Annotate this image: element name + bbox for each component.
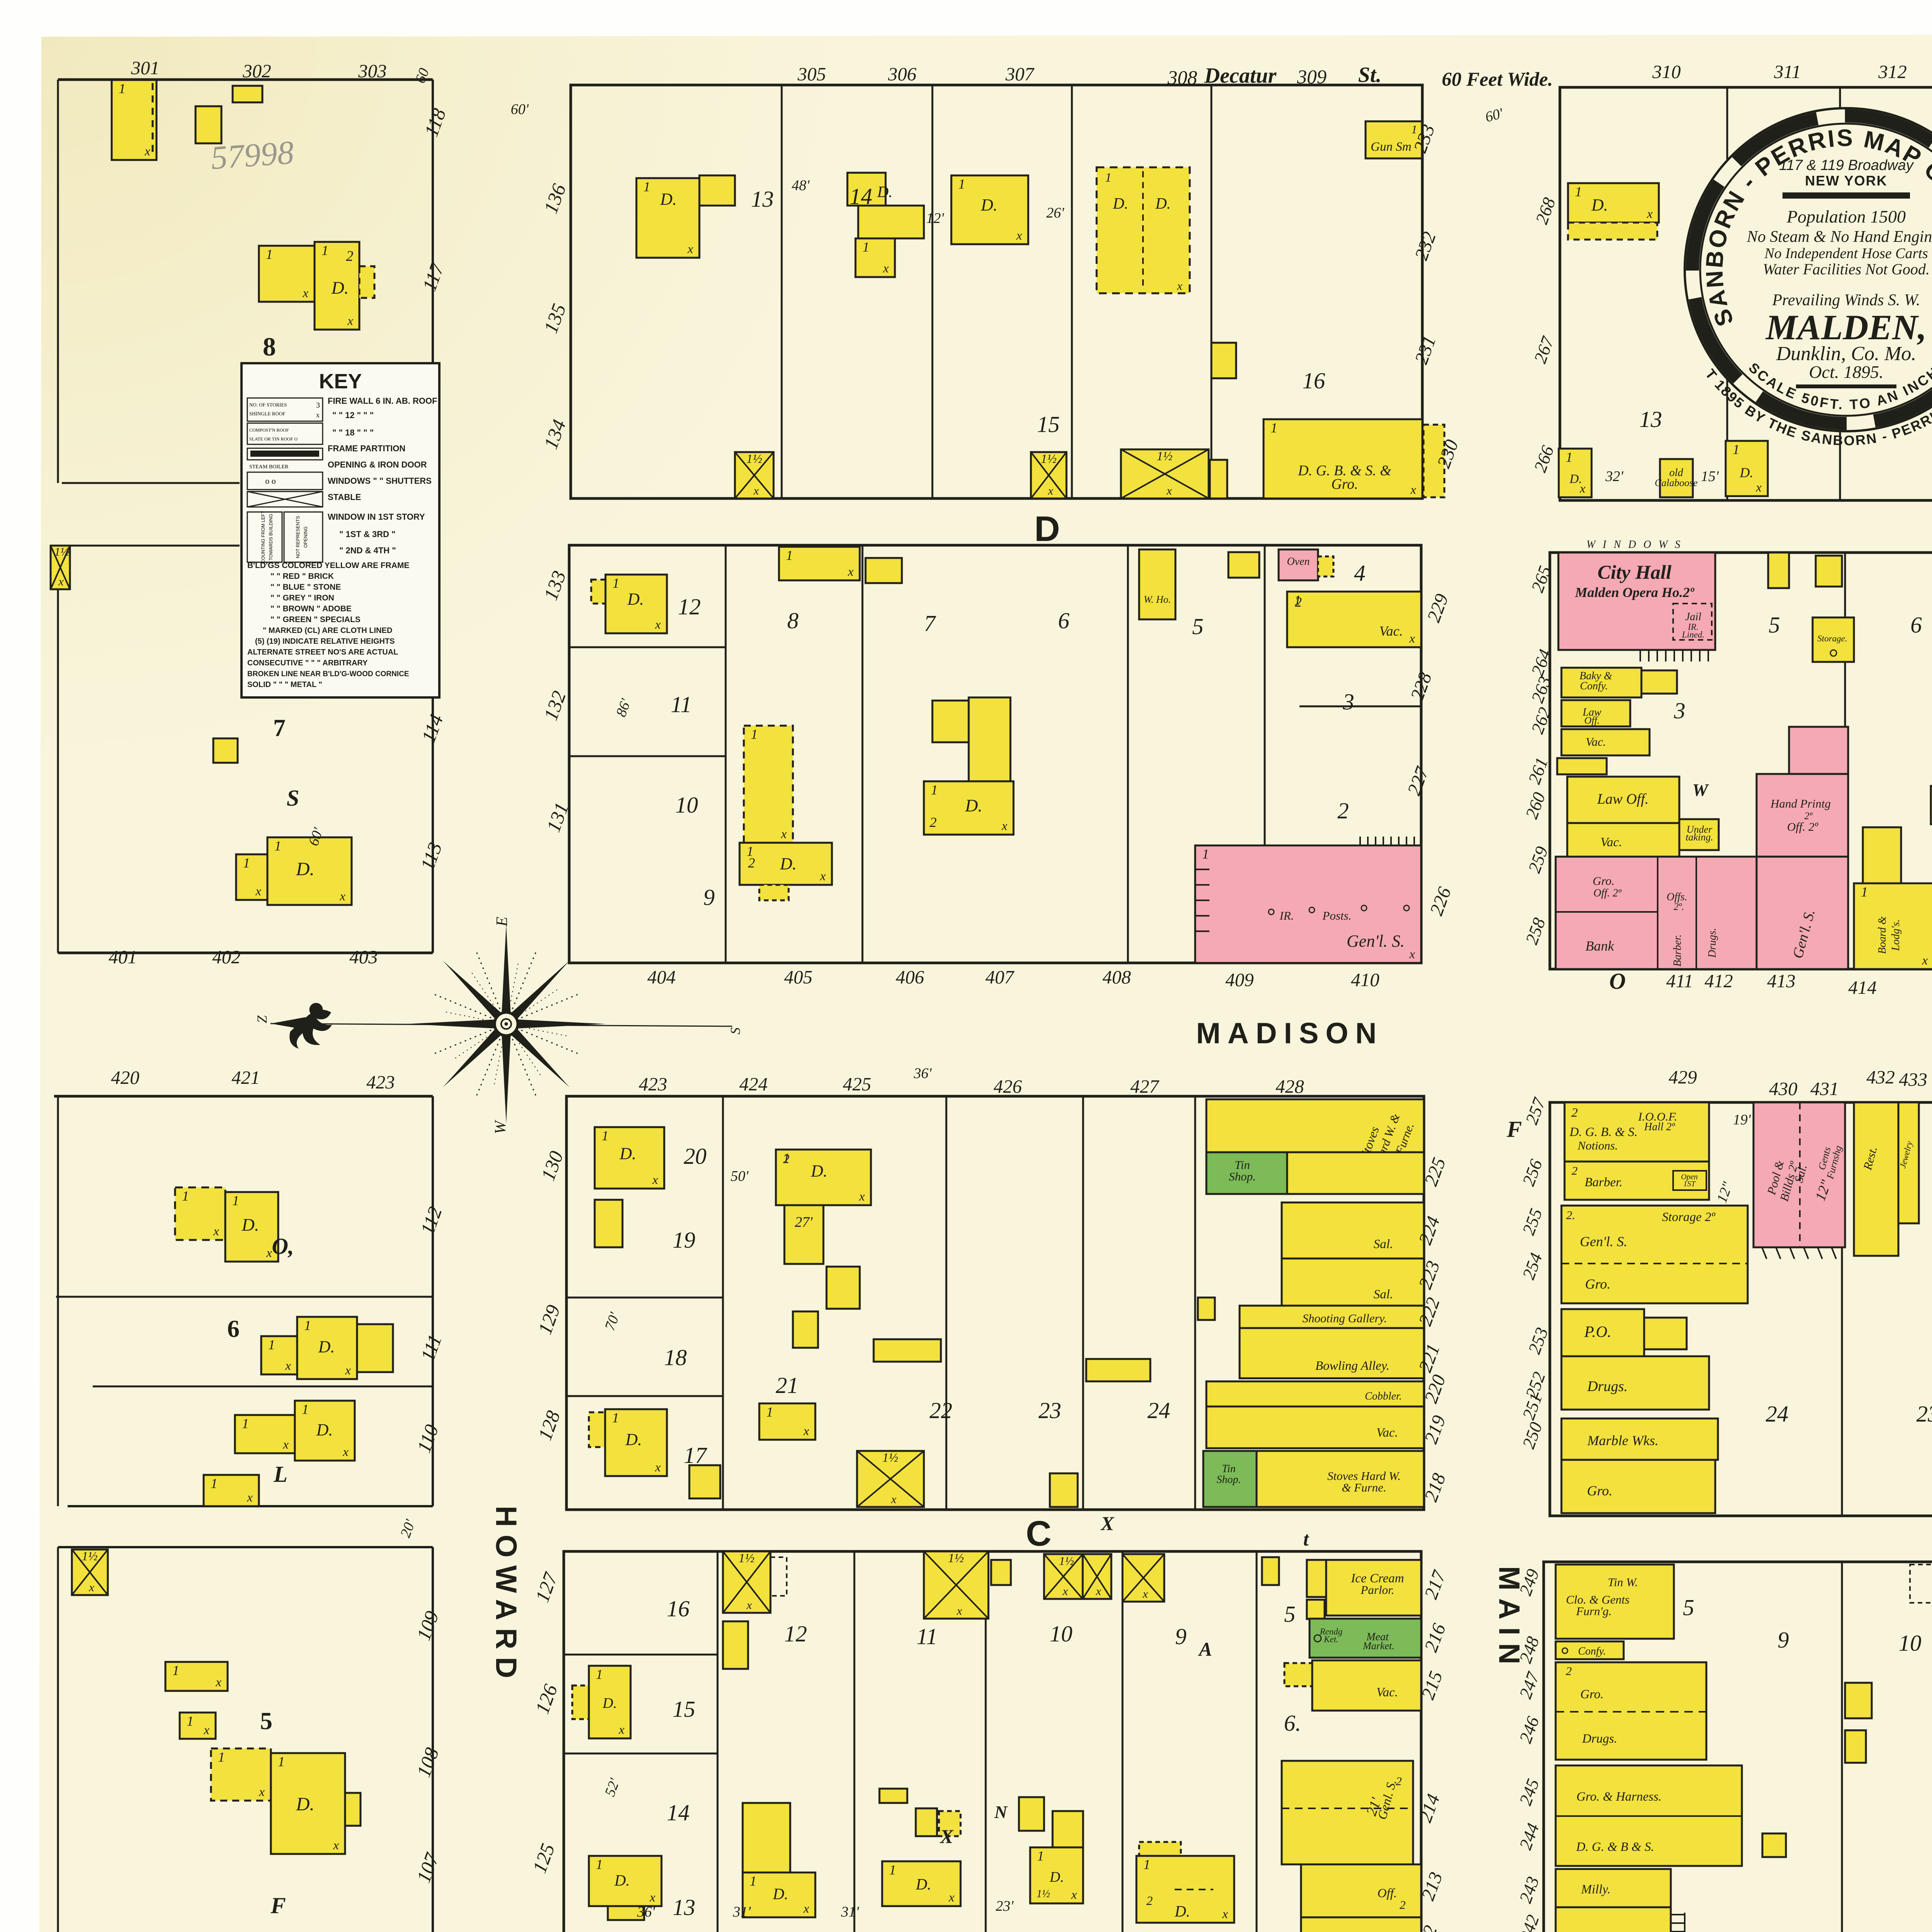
svg-text:Bowling Alley.: Bowling Alley. [1315, 1359, 1389, 1373]
svg-text:307: 307 [1005, 63, 1035, 85]
svg-text:420: 420 [111, 1067, 139, 1088]
svg-text:13: 13 [1639, 406, 1662, 432]
svg-text:405: 405 [784, 966, 813, 988]
svg-text:1½: 1½ [82, 1549, 97, 1563]
svg-text:1: 1 [1861, 884, 1868, 900]
svg-text:Law Off.: Law Off. [1597, 791, 1648, 807]
svg-text:421: 421 [231, 1067, 260, 1088]
svg-text:NEW YORK: NEW YORK [1805, 173, 1887, 189]
svg-text:WINDOWS " " SHUTTERS: WINDOWS " " SHUTTERS [328, 476, 432, 486]
svg-text:D.: D. [780, 854, 797, 873]
svg-text:x: x [820, 869, 826, 883]
svg-text:Vac.: Vac. [1586, 735, 1606, 748]
svg-text:1½: 1½ [948, 1551, 964, 1565]
svg-text:x: x [649, 1891, 655, 1905]
svg-text:5: 5 [1683, 1595, 1694, 1620]
svg-text:402: 402 [212, 946, 241, 968]
svg-text:Notions.: Notions. [1577, 1139, 1618, 1152]
svg-text:KEY: KEY [319, 370, 362, 393]
svg-text:x: x [282, 1438, 289, 1452]
svg-text:D.: D. [877, 183, 893, 201]
svg-text:2: 2 [748, 855, 755, 871]
svg-text:Off. 2º: Off. 2º [1594, 887, 1622, 899]
svg-text:6: 6 [1910, 612, 1922, 638]
svg-text:Vac.: Vac. [1600, 835, 1622, 849]
svg-text:D.: D. [296, 858, 315, 879]
svg-text:Dunklin, Co. Mo.: Dunklin, Co. Mo. [1776, 343, 1917, 365]
svg-text:Confy.: Confy. [1580, 680, 1608, 692]
svg-text:2: 2 [1396, 1774, 1402, 1788]
svg-text:x: x [333, 1838, 339, 1852]
svg-text:NO. OF STORIES: NO. OF STORIES [249, 402, 287, 408]
svg-text:2: 2 [783, 1152, 790, 1166]
svg-text:x: x [203, 1723, 209, 1737]
svg-text:STABLE: STABLE [328, 492, 361, 502]
svg-text:36': 36' [913, 1065, 932, 1082]
svg-text:6: 6 [227, 1315, 240, 1342]
svg-text:1: 1 [750, 1873, 757, 1889]
svg-text:D.: D. [660, 190, 677, 209]
svg-text:1: 1 [1270, 420, 1277, 435]
svg-text:D.: D. [1591, 196, 1608, 214]
svg-text:1: 1 [931, 782, 938, 798]
svg-text:1: 1 [958, 176, 965, 192]
svg-text:x: x [213, 1225, 219, 1238]
svg-text:407: 407 [985, 966, 1015, 988]
svg-text:D.: D. [965, 796, 983, 815]
svg-text:423: 423 [366, 1071, 395, 1093]
svg-text:Market.: Market. [1362, 1640, 1395, 1651]
svg-text:50': 50' [731, 1168, 749, 1184]
svg-text:L: L [273, 1461, 287, 1487]
svg-text:31': 31' [841, 1904, 859, 1920]
svg-text:2: 2 [1571, 1106, 1578, 1120]
svg-text:403: 403 [349, 946, 378, 968]
svg-text:3: 3 [1342, 689, 1354, 714]
svg-text:x: x [803, 1902, 809, 1916]
svg-text:Hand Printg: Hand Printg [1770, 797, 1831, 810]
svg-text:Oven: Oven [1287, 556, 1310, 568]
svg-text:" " BROWN " A: " " BROWN " ADOBE [270, 604, 352, 613]
svg-text:1: 1 [1143, 1857, 1150, 1872]
svg-text:Tin: Tin [1222, 1463, 1236, 1475]
svg-text:t: t [1303, 1529, 1310, 1550]
svg-text:2: 2 [1146, 1894, 1153, 1908]
svg-text:1: 1 [596, 1857, 603, 1872]
svg-text:P.O.: P.O. [1584, 1323, 1611, 1340]
svg-text:Gen'l. S.: Gen'l. S. [1347, 932, 1405, 951]
svg-text:NOT REPRESENTS: NOT REPRESENTS [295, 516, 301, 558]
svg-text:8: 8 [263, 332, 276, 361]
svg-text:x: x [266, 1246, 272, 1260]
svg-text:428: 428 [1276, 1076, 1304, 1097]
svg-text:12: 12 [678, 594, 701, 619]
svg-text:424: 424 [739, 1073, 768, 1095]
svg-text:E: E [493, 917, 510, 927]
svg-text:1: 1 [304, 1318, 311, 1333]
svg-text:1: 1 [274, 838, 281, 854]
svg-text:431: 431 [1810, 1078, 1839, 1099]
svg-text:D.: D. [772, 1885, 788, 1903]
svg-text:2: 2 [1571, 1164, 1578, 1177]
svg-text:D. G. B. & S.: D. G. B. & S. [1569, 1125, 1638, 1139]
svg-text:32': 32' [1605, 468, 1624, 485]
svg-text:1: 1 [232, 1193, 239, 1208]
svg-text:409: 409 [1225, 969, 1254, 990]
svg-text:425: 425 [843, 1073, 871, 1095]
svg-text:Gro.: Gro. [1331, 476, 1358, 492]
svg-text:x: x [1048, 484, 1053, 497]
svg-text:430: 430 [1769, 1078, 1798, 1099]
svg-text:15: 15 [1037, 412, 1060, 437]
svg-text:10: 10 [675, 792, 698, 818]
svg-text:MALDEN,: MALDEN, [1765, 308, 1927, 347]
svg-text:x: x [316, 411, 320, 419]
svg-text:308: 308 [1167, 67, 1197, 89]
svg-text:D.: D. [1049, 1869, 1064, 1885]
svg-text:1: 1 [182, 1188, 189, 1204]
svg-text:x: x [1409, 632, 1415, 646]
svg-text:11: 11 [917, 1624, 938, 1649]
svg-text:Posts.: Posts. [1322, 909, 1352, 922]
svg-text:x: x [1001, 819, 1007, 833]
svg-text:Vac.: Vac. [1376, 1685, 1398, 1699]
svg-text:D.: D. [602, 1695, 617, 1711]
svg-text:x: x [746, 1598, 752, 1612]
svg-text:57998: 57998 [209, 134, 295, 177]
svg-text:2: 2 [346, 248, 354, 264]
svg-text:x: x [891, 1492, 896, 1506]
svg-text:F: F [270, 1893, 286, 1918]
svg-text:x: x [652, 1173, 658, 1187]
svg-text:Calaboose: Calaboose [1655, 477, 1697, 488]
svg-text:Gro.: Gro. [1580, 1687, 1604, 1701]
svg-text:1: 1 [786, 548, 793, 563]
svg-text:C: C [1026, 1514, 1051, 1553]
svg-text:27': 27' [795, 1214, 813, 1230]
svg-text:Gro.: Gro. [1587, 1483, 1612, 1498]
svg-text:412: 412 [1704, 970, 1733, 992]
svg-text:x: x [883, 262, 889, 276]
svg-text:414: 414 [1848, 977, 1877, 998]
svg-text:310: 310 [1652, 61, 1681, 82]
svg-text:Off. 2º: Off. 2º [1787, 820, 1819, 833]
svg-text:Off.: Off. [1584, 715, 1600, 726]
svg-text:Gun Sm: Gun Sm [1371, 140, 1411, 154]
svg-text:x: x [1222, 1907, 1228, 1921]
svg-text:x: x [347, 314, 353, 328]
svg-text:5: 5 [1769, 612, 1780, 638]
svg-text:Gro.: Gro. [1585, 1276, 1611, 1292]
svg-text:Drugs.: Drugs. [1587, 1378, 1628, 1395]
svg-text:Ket.: Ket. [1323, 1634, 1338, 1644]
svg-text:1: 1 [596, 1667, 603, 1682]
svg-text:Sal.: Sal. [1374, 1237, 1393, 1251]
svg-text:x: x [803, 1424, 809, 1438]
svg-text:22: 22 [930, 1398, 952, 1423]
svg-text:1: 1 [268, 1337, 275, 1352]
svg-text:10: 10 [1899, 1630, 1922, 1656]
svg-text:60 Feet Wide.: 60 Feet Wide. [1442, 69, 1553, 90]
svg-text:1: 1 [602, 1128, 609, 1143]
svg-text:2: 2 [1400, 1898, 1406, 1912]
svg-text:411: 411 [1666, 970, 1693, 992]
svg-text:x: x [1071, 1888, 1077, 1902]
svg-text:13: 13 [751, 186, 774, 212]
svg-text:Vac.: Vac. [1376, 1426, 1398, 1440]
svg-text:Shop.: Shop. [1229, 1170, 1256, 1183]
svg-text:St.: St. [1358, 63, 1382, 87]
svg-text:x: x [1166, 484, 1172, 497]
svg-text:D. G. & B & S.: D. G. & B & S. [1576, 1840, 1654, 1854]
svg-text:2: 2 [1566, 1664, 1572, 1678]
svg-text:1: 1 [643, 179, 650, 194]
svg-text:D.: D. [981, 196, 998, 214]
svg-text:D.: D. [241, 1215, 259, 1235]
svg-text:5: 5 [1192, 614, 1204, 639]
svg-text:x: x [1095, 1584, 1101, 1598]
svg-text:x: x [655, 618, 661, 632]
svg-text:4: 4 [1354, 560, 1366, 586]
svg-text:1½: 1½ [1059, 1554, 1074, 1568]
svg-text:3: 3 [316, 401, 320, 410]
svg-text:9: 9 [1175, 1624, 1187, 1649]
svg-text:2.: 2. [1566, 1208, 1575, 1222]
svg-text:6: 6 [1058, 608, 1070, 633]
svg-text:12: 12 [784, 1621, 807, 1646]
svg-text:303: 303 [358, 60, 387, 82]
svg-text:Marble Wks.: Marble Wks. [1587, 1433, 1658, 1448]
svg-text:26': 26' [1046, 205, 1065, 221]
svg-text:Lined.: Lined. [1682, 630, 1704, 639]
svg-text:Hall 2º: Hall 2º [1644, 1121, 1675, 1133]
svg-text:FRAME PARTITION: FRAME PARTITION [328, 444, 405, 453]
svg-text:SHINGLE ROOF: SHINGLE ROOF [249, 411, 286, 417]
svg-text:19': 19' [1733, 1112, 1751, 1128]
svg-text:1: 1 [1105, 171, 1112, 185]
svg-text:x: x [1177, 279, 1182, 293]
svg-text:Off.: Off. [1378, 1886, 1397, 1900]
svg-text:x: x [247, 1491, 253, 1505]
svg-text:S: S [287, 785, 299, 811]
svg-text:D.: D. [331, 278, 349, 298]
svg-text:Board &: Board & [1876, 916, 1888, 954]
svg-text:401: 401 [109, 946, 137, 968]
svg-text:" " GREEN " S: " " GREEN " SPECIALS [270, 615, 361, 624]
svg-text:W: W [491, 1119, 509, 1134]
svg-text:9: 9 [703, 884, 715, 910]
svg-text:1: 1 [766, 1404, 773, 1420]
svg-text:10: 10 [1050, 1621, 1073, 1646]
svg-text:23': 23' [996, 1898, 1014, 1914]
svg-text:1: 1 [119, 81, 126, 96]
svg-text:x: x [655, 1461, 661, 1475]
svg-text:60': 60' [511, 101, 529, 117]
svg-text:No Independent Hose Carts: No Independent Hose Carts [1764, 245, 1928, 262]
svg-text:" " GREY ": " " GREY " IRON [270, 594, 334, 602]
svg-text:1½: 1½ [738, 1551, 754, 1565]
svg-text:x: x [618, 1723, 624, 1737]
svg-text:410: 410 [1351, 969, 1379, 990]
svg-text:311: 311 [1774, 61, 1801, 82]
svg-text:1: 1 [218, 1749, 225, 1765]
svg-text:Lodg's.: Lodg's. [1890, 919, 1902, 951]
svg-text:x: x [1755, 481, 1762, 495]
svg-text:taking.: taking. [1685, 832, 1713, 843]
svg-text:17: 17 [684, 1442, 708, 1468]
svg-text:D.: D. [915, 1875, 931, 1893]
svg-text:Shop.: Shop. [1217, 1474, 1241, 1486]
svg-text:Sal.: Sal. [1374, 1287, 1393, 1301]
svg-text:24: 24 [1148, 1398, 1170, 1423]
svg-text:D.: D. [1174, 1902, 1190, 1920]
svg-text:Decatur: Decatur [1204, 64, 1277, 88]
svg-text:" " BLUE ": " " BLUE " STONE [270, 583, 341, 592]
svg-text:24: 24 [1766, 1401, 1789, 1427]
svg-text:1: 1 [278, 1754, 285, 1769]
svg-text:HOWARD: HOWARD [490, 1506, 522, 1686]
svg-text:305: 305 [797, 63, 826, 85]
svg-text:Tin W.: Tin W. [1608, 1575, 1638, 1589]
svg-text:D.: D. [318, 1337, 335, 1356]
svg-text:Barber.: Barber. [1672, 934, 1684, 966]
svg-text:CONSECUTIVE " " " AR: CONSECUTIVE " " " ARBITRARY [247, 659, 368, 667]
svg-text:1½: 1½ [54, 545, 70, 558]
svg-text:15': 15' [1701, 468, 1719, 485]
svg-text:D: D [1034, 509, 1060, 549]
svg-text:x: x [1922, 954, 1928, 968]
svg-text:1: 1 [1566, 449, 1573, 465]
svg-text:City Hall: City Hall [1597, 562, 1672, 583]
svg-text:D.: D. [1155, 194, 1171, 212]
svg-text:x: x [1409, 947, 1415, 961]
svg-text:16: 16 [1303, 368, 1326, 393]
svg-text:11: 11 [671, 692, 692, 717]
svg-text:WINDOW IN 1ST STORY: WINDOW IN 1ST STORY [328, 512, 425, 522]
svg-text:& Furne.: & Furne. [1342, 1481, 1386, 1494]
svg-text:426: 426 [993, 1076, 1022, 1097]
svg-text:TOWARDS BUILDING: TOWARDS BUILDING [268, 514, 274, 561]
svg-text:X: X [1100, 1513, 1115, 1535]
svg-text:19: 19 [673, 1227, 696, 1253]
svg-text:O,: O, [272, 1233, 294, 1259]
svg-text:Drugs.: Drugs. [1582, 1732, 1617, 1746]
svg-text:X: X [939, 1826, 954, 1848]
svg-text:117 & 119 Broadway: 117 & 119 Broadway [1779, 157, 1914, 173]
svg-text:Oct. 1895.: Oct. 1895. [1809, 362, 1884, 382]
svg-text:x: x [302, 286, 308, 300]
svg-text:2: 2 [1337, 798, 1349, 823]
svg-text:STEAM BOILER: STEAM BOILER [249, 464, 289, 470]
svg-text:3: 3 [1673, 698, 1685, 723]
svg-text:1: 1 [1037, 1848, 1044, 1864]
svg-text:Jail: Jail [1685, 611, 1701, 623]
svg-text:" 2ND & 4TH ": " 2ND & 4TH " [339, 546, 396, 555]
svg-text:1½: 1½ [882, 1451, 898, 1465]
svg-text:8: 8 [787, 608, 799, 633]
svg-text:BROKEN LINE NEAR B'LD'G-WOOD C: BROKEN LINE NEAR B'LD'G-WOOD CORNICE [247, 670, 409, 678]
svg-text:OPENING: OPENING [303, 526, 308, 548]
svg-text:21: 21 [776, 1372, 799, 1398]
svg-text:23: 23 [1039, 1398, 1061, 1423]
svg-text:x: x [339, 889, 345, 903]
svg-text:2: 2 [1295, 594, 1302, 610]
svg-text:D.: D. [625, 1430, 642, 1449]
svg-text:6.: 6. [1284, 1710, 1301, 1736]
svg-text:432: 432 [1866, 1066, 1895, 1088]
svg-text:1: 1 [751, 726, 758, 742]
svg-text:1½: 1½ [1156, 449, 1172, 463]
svg-text:5: 5 [1284, 1601, 1296, 1627]
svg-text:FIRE WALL 6 IN. AB. ROOF: FIRE WALL 6 IN. AB. ROOF [328, 396, 437, 406]
svg-text:Z: Z [254, 1015, 270, 1023]
svg-text:413: 413 [1767, 970, 1796, 992]
svg-text:x: x [956, 1604, 962, 1617]
svg-text:(5) (19) INDICATE RELATIVE HE: (5) (19) INDICATE RELATIVE HEIGHTS [255, 637, 395, 646]
svg-text:D.: D. [614, 1871, 630, 1889]
svg-text:x: x [753, 484, 759, 497]
svg-text:1: 1 [242, 1416, 249, 1431]
svg-text:14: 14 [850, 184, 872, 209]
svg-text:309: 309 [1297, 66, 1327, 88]
svg-text:Cobbler.: Cobbler. [1365, 1390, 1402, 1402]
svg-text:A: A [1198, 1639, 1212, 1660]
svg-text:1: 1 [211, 1476, 218, 1491]
svg-text:1: 1 [1733, 442, 1740, 457]
svg-text:5: 5 [260, 1707, 272, 1735]
svg-text:o o: o o [265, 476, 276, 486]
svg-text:x: x [1410, 483, 1416, 497]
svg-text:x: x [215, 1675, 221, 1689]
svg-text:x: x [1062, 1584, 1068, 1598]
svg-text:x: x [255, 884, 261, 898]
svg-text:" MARKED (CL) ARE CLOTH LINE: " MARKED (CL) ARE CLOTH LINED [263, 626, 392, 635]
svg-text:MADISON: MADISON [1196, 1017, 1384, 1050]
svg-text:2º.: 2º. [1673, 901, 1684, 912]
svg-text:x: x [1142, 1587, 1148, 1600]
svg-text:D.: D. [296, 1793, 315, 1815]
svg-text:1: 1 [302, 1401, 309, 1417]
svg-text:" " RED ": " " RED " BRICK [270, 572, 334, 581]
svg-text:9: 9 [1777, 1627, 1789, 1653]
svg-text:406: 406 [896, 966, 924, 988]
svg-text:16: 16 [667, 1596, 690, 1621]
svg-text:S: S [728, 1027, 743, 1034]
svg-text:x: x [345, 1364, 351, 1378]
svg-text:x: x [687, 242, 693, 256]
svg-text:x: x [342, 1445, 349, 1459]
svg-text:D.: D. [811, 1162, 828, 1180]
svg-text:312: 312 [1878, 61, 1907, 82]
svg-text:SOLID " " ": SOLID " " " METAL " [247, 680, 322, 689]
svg-text:W. Ho.: W. Ho. [1144, 594, 1171, 605]
svg-text:D.: D. [1740, 465, 1753, 480]
svg-text:1ST: 1ST [1683, 1180, 1696, 1188]
svg-text:x: x [1016, 229, 1022, 243]
svg-text:x: x [88, 1580, 94, 1594]
svg-text:D.: D. [619, 1144, 636, 1163]
svg-text:1: 1 [612, 1410, 619, 1425]
svg-text:Gro. & Harness.: Gro. & Harness. [1577, 1790, 1662, 1804]
svg-text:SLATE OR TIN ROOF O: SLATE OR TIN ROOF O [249, 436, 298, 442]
svg-text:" 1ST & 3RD ": " 1ST & 3RD " [339, 529, 396, 539]
svg-text:Milly.: Milly. [1581, 1883, 1611, 1896]
svg-text:Gro.: Gro. [1593, 874, 1615, 888]
svg-text:N: N [994, 1802, 1008, 1822]
svg-text:Bank: Bank [1585, 938, 1614, 954]
svg-text:48': 48' [792, 177, 810, 194]
svg-text:301: 301 [131, 57, 160, 78]
